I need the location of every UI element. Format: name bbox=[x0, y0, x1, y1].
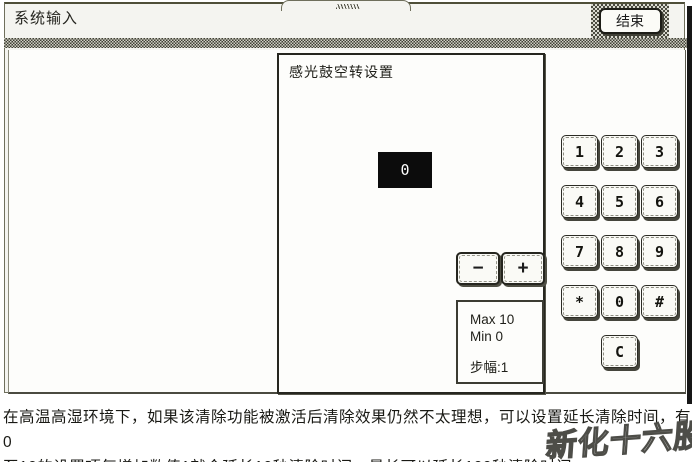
keypad-key-6[interactable]: 6 bbox=[641, 185, 678, 218]
value-display: 0 bbox=[378, 152, 432, 188]
tab-marks-icon bbox=[336, 4, 360, 9]
dialog-title: 感光鼓空转设置 bbox=[289, 62, 394, 82]
keypad-key-5[interactable]: 5 bbox=[601, 185, 638, 218]
keypad-key-1[interactable]: 1 bbox=[561, 135, 598, 168]
end-button-focus-frame: 结束 bbox=[591, 4, 669, 38]
tab-bump bbox=[281, 0, 411, 11]
step-label: 步幅:1 bbox=[470, 359, 542, 376]
copier-settings-screen: 系统输入 结束 感光鼓空转设置 0 − + Max 10 Min 0 步幅:1 … bbox=[0, 0, 692, 462]
decrement-button[interactable]: − bbox=[456, 252, 500, 285]
keypad-key-9[interactable]: 9 bbox=[641, 235, 678, 268]
keypad-key-0[interactable]: 0 bbox=[601, 285, 638, 318]
keypad-key-2[interactable]: 2 bbox=[601, 135, 638, 168]
increment-button[interactable]: + bbox=[501, 252, 545, 285]
hatch-divider bbox=[4, 38, 688, 48]
end-button[interactable]: 结束 bbox=[599, 8, 662, 34]
keypad-key-7[interactable]: 7 bbox=[561, 235, 598, 268]
keypad-key-star[interactable]: * bbox=[561, 285, 598, 318]
limits-box: Max 10 Min 0 步幅:1 bbox=[456, 300, 544, 384]
keypad-key-4[interactable]: 4 bbox=[561, 185, 598, 218]
limits-spacer bbox=[470, 345, 542, 359]
min-label: Min 0 bbox=[470, 328, 542, 345]
keypad-key-8[interactable]: 8 bbox=[601, 235, 638, 268]
keypad-key-hash[interactable]: # bbox=[641, 285, 678, 318]
window-title: 系统输入 bbox=[14, 7, 78, 28]
max-label: Max 10 bbox=[470, 311, 542, 328]
keypad-key-3[interactable]: 3 bbox=[641, 135, 678, 168]
clear-button[interactable]: C bbox=[601, 335, 638, 368]
photo-edge-strip bbox=[687, 6, 692, 404]
